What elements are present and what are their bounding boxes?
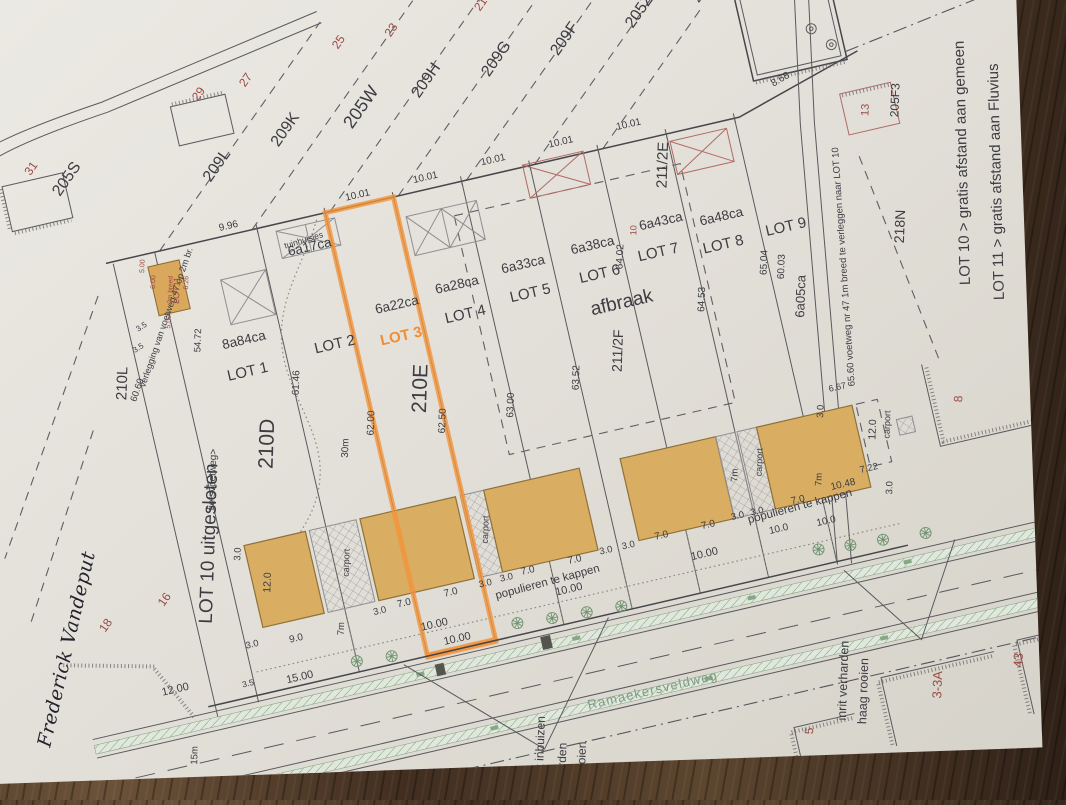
photo-of-site-plan: { "colors": { "accent_orange": "#ef8f35"… (0, 0, 1066, 800)
dim-label: 62.50 (437, 408, 449, 434)
house-number: 13 (859, 104, 871, 117)
house-number: 10 (628, 225, 638, 235)
dim-label: 6.00 (150, 275, 157, 289)
parcel-label: 211/2F (609, 329, 626, 372)
dim-label: carport (881, 410, 892, 439)
dim-label: 5.00 (165, 315, 172, 329)
dim-label: 64.02 (615, 244, 627, 270)
dim-label: carport (754, 448, 765, 477)
dim-label: 54.72 (192, 328, 204, 352)
dim-label: carport (480, 515, 491, 544)
bottom-note: verharden (554, 742, 570, 797)
dim-label: 65.04 (759, 249, 771, 275)
bottom-note: g rooien (574, 741, 590, 785)
parcel-label: 218N (891, 209, 908, 243)
parcel-label: 205F3 (887, 83, 902, 118)
dim-label: 5.00 (139, 259, 146, 273)
fietsvoetweg-note: fietsvoetweg> (206, 449, 219, 511)
house-number: 5 (802, 727, 816, 734)
parcel-label: 210E (408, 364, 433, 414)
inrit-note: inrit verharden (835, 640, 852, 720)
dim-label: carport (341, 548, 352, 577)
dim-label: 63.00 (505, 392, 517, 418)
site-plan-photo: 9.96 10.01 10.01 10.01 10.01 10.01 8.68 … (0, 0, 1066, 800)
dim-label: 62.00 (366, 410, 378, 436)
dim-label: 61.46 (291, 370, 303, 396)
parcel-label: 211/2E (653, 142, 672, 189)
paper-sheet (0, 0, 1042, 785)
dim-label: 7m (729, 468, 740, 482)
dim-label: 60.03 (776, 254, 788, 280)
house-number: 3-3A (929, 670, 945, 698)
dim-label: 7m (336, 622, 347, 636)
dim-label: 7m (813, 473, 824, 487)
dim-label: 3.0 (232, 547, 243, 561)
bottom-note: rsteek inbuizen (531, 716, 548, 797)
inrit-note: haag rooien (855, 658, 871, 725)
house-number: 43 (1010, 653, 1025, 668)
dim-label: 63.52 (571, 365, 583, 391)
dim-label: 64.53 (696, 286, 708, 312)
dim-label: 3.0 (815, 405, 826, 419)
dim-label: 2m breed (167, 276, 175, 304)
dim-label: 12.0 (866, 419, 879, 440)
dim-label: 15m (189, 746, 201, 765)
dim-label: 3.0 (884, 481, 895, 495)
dim-label: 6.26 (183, 276, 190, 290)
parcel-label: 210D (255, 418, 280, 469)
lot-code: 6a05ca (792, 274, 809, 318)
dim-label: 12.0 (261, 572, 274, 593)
parcel-label: 210L (113, 367, 131, 401)
house-number: 8 (951, 395, 965, 402)
dim-label: 30m (340, 438, 352, 458)
